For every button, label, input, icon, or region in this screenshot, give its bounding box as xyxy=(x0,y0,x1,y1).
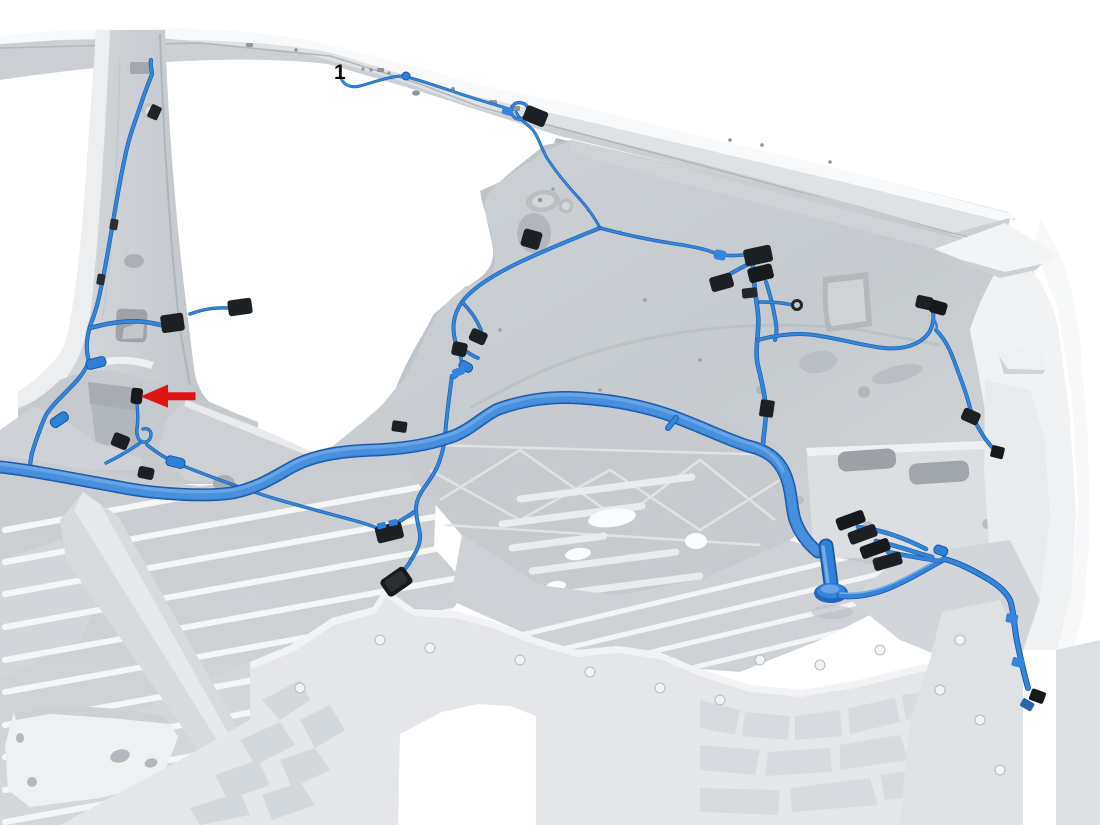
svg-text:1: 1 xyxy=(334,61,346,84)
